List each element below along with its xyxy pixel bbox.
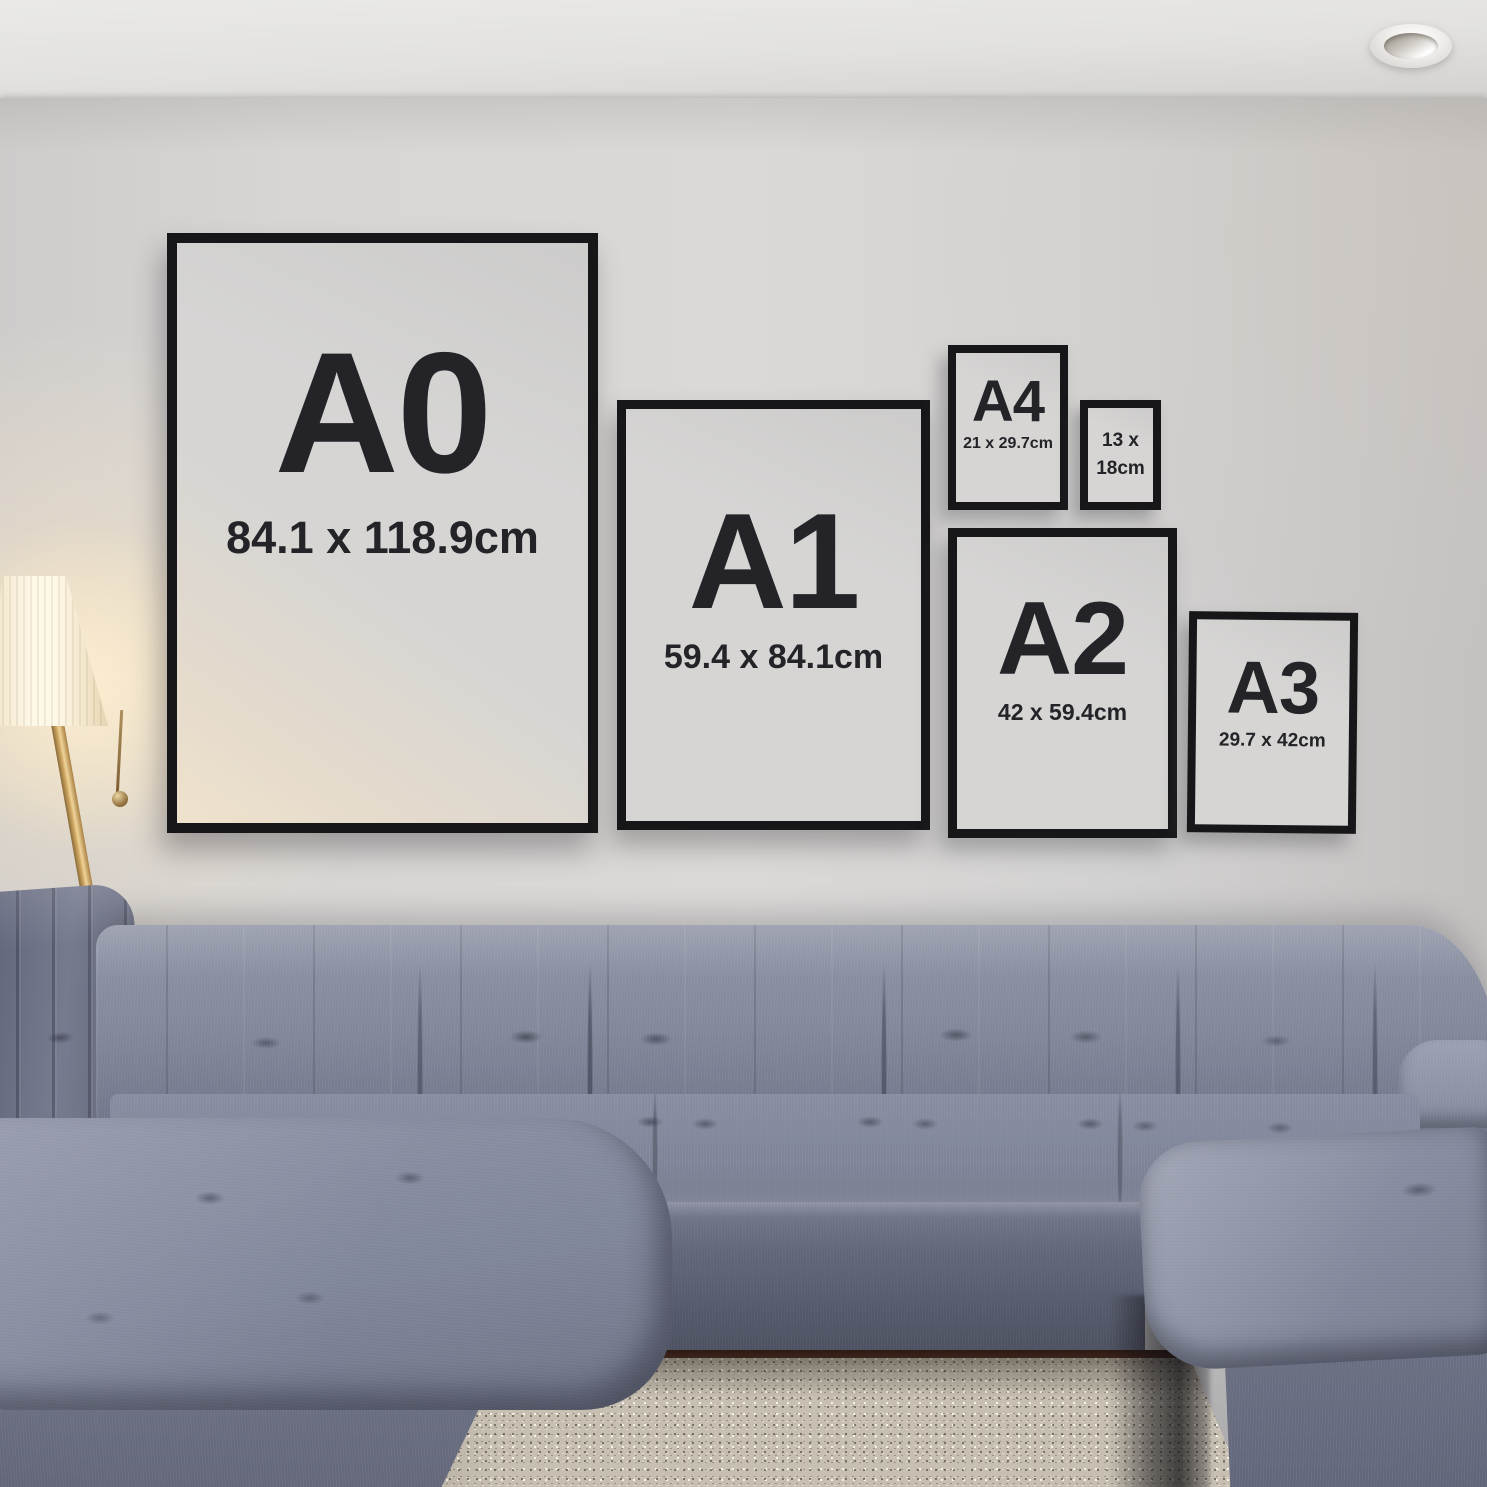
poster-frame-a0: A0 84.1 x 118.9cm <box>167 233 598 833</box>
sofa-left-chaise-cushion <box>0 1118 672 1410</box>
size-dimensions-a3: 29.7 x 42cm <box>1219 730 1326 753</box>
size-dimensions-a4: 21 x 29.7cm <box>963 435 1053 453</box>
poster-frame-a1: A1 59.4 x 84.1cm <box>617 400 930 830</box>
size-code-a2: A2 <box>997 590 1128 689</box>
size-dimensions-a0: 84.1 x 118.9cm <box>226 512 539 564</box>
sectional-sofa <box>0 880 1487 1487</box>
poster-frame-a3: A3 29.7 x 42cm <box>1187 611 1358 834</box>
sofa-right-ottoman-cushion <box>1136 1126 1487 1373</box>
poster-a3: A3 29.7 x 42cm <box>1195 619 1350 826</box>
size-dimensions-13x18: 13 x 18cm <box>1093 427 1149 482</box>
poster-13x18: 13 x 18cm <box>1088 408 1153 502</box>
living-room-scene: A0 84.1 x 118.9cm A1 59.4 x 84.1cm A4 21… <box>0 0 1487 1487</box>
ceiling <box>0 0 1487 100</box>
poster-frame-a2: A2 42 x 59.4cm <box>948 528 1177 838</box>
size-code-a4: A4 <box>972 374 1044 429</box>
size-code-a3: A3 <box>1226 652 1319 723</box>
size-code-a1: A1 <box>689 497 859 626</box>
poster-frame-a4: A4 21 x 29.7cm <box>948 345 1068 510</box>
size-dimensions-a1: 59.4 x 84.1cm <box>664 638 883 677</box>
recessed-ceiling-light <box>1370 24 1452 68</box>
recessed-light-bulb <box>1384 33 1438 59</box>
poster-frame-13x18: 13 x 18cm <box>1080 400 1161 510</box>
poster-a4: A4 21 x 29.7cm <box>956 353 1060 502</box>
size-dimensions-a2: 42 x 59.4cm <box>998 699 1127 726</box>
poster-a2: A2 42 x 59.4cm <box>957 537 1168 829</box>
poster-a1: A1 59.4 x 84.1cm <box>626 409 921 821</box>
size-code-a0: A0 <box>275 332 491 495</box>
poster-a0: A0 84.1 x 118.9cm <box>177 243 588 823</box>
